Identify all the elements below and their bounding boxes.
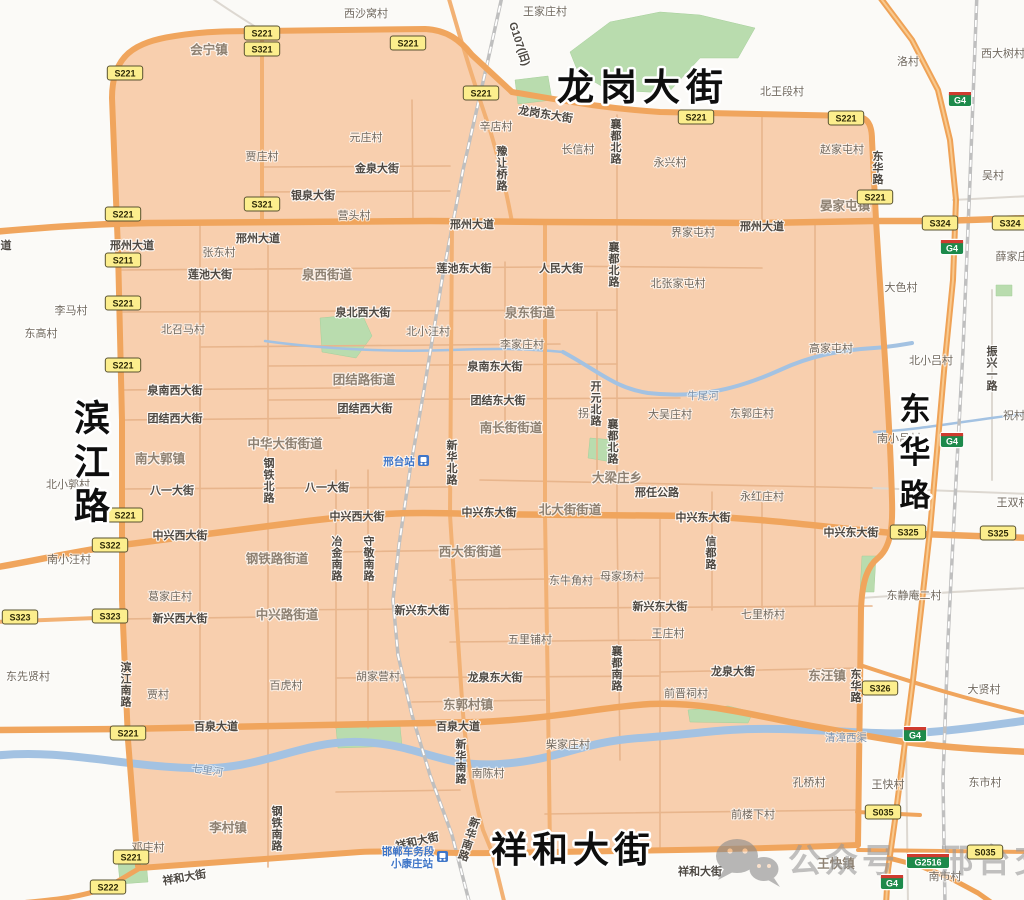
svg-text:G4: G4 <box>946 244 958 254</box>
village-label: 东先贤村 <box>6 669 50 683</box>
district-label: 大梁庄乡 <box>592 470 642 485</box>
svg-text:S325: S325 <box>897 528 918 538</box>
route-shield-S221: S221 <box>463 86 498 100</box>
svg-text:G2516: G2516 <box>914 858 941 868</box>
svg-text:S324: S324 <box>929 219 950 229</box>
svg-text:S221: S221 <box>112 361 133 371</box>
route-shield-G4: G4 <box>948 91 973 107</box>
village-label: 李家庄村 <box>500 337 544 351</box>
road-label: 滨江南路 <box>121 660 133 709</box>
svg-text:S221: S221 <box>114 69 135 79</box>
village-label: 王家庄村 <box>523 4 567 18</box>
road-label: 新兴西大街 <box>153 611 208 625</box>
road-label: 中兴东大街 <box>462 505 517 519</box>
village-label: 贾村 <box>147 687 169 701</box>
district-label: 团结路街道 <box>333 372 396 387</box>
route-shield-S323: S323 <box>92 609 127 623</box>
svg-text:S211: S211 <box>113 256 134 266</box>
road-label: 银泉大街 <box>291 188 335 202</box>
village-label: 辛店村 <box>480 119 513 133</box>
svg-text:邯郸车务段: 邯郸车务段 <box>382 845 435 858</box>
village-label: 洛村 <box>897 54 919 68</box>
route-shield-S324: S324 <box>922 216 957 230</box>
svg-text:S325: S325 <box>987 529 1008 539</box>
svg-text:G4: G4 <box>886 879 898 889</box>
svg-text:S222: S222 <box>97 883 118 893</box>
road-label: 泉南西大街 <box>147 383 203 397</box>
route-shield-S221: S221 <box>244 26 279 40</box>
road-label: 邢任公路 <box>634 485 680 499</box>
svg-text:G4: G4 <box>946 437 958 447</box>
district-label: 西大街街道 <box>439 544 502 559</box>
svg-text:S221: S221 <box>835 114 856 124</box>
village-label: 张东村 <box>203 245 236 259</box>
district-label: 南大郭镇 <box>135 451 186 466</box>
road-label: 邢州大道 <box>109 238 154 252</box>
route-shield-S221: S221 <box>110 726 145 740</box>
road-label: 祥和大街 <box>678 864 722 878</box>
river-label: 牛尾河 <box>687 389 719 402</box>
arterial-big-label: 祥和大街 <box>491 829 655 870</box>
road-label: 八一大街 <box>304 480 349 494</box>
village-label: 北王段村 <box>760 84 804 98</box>
road-label: 开元北路 <box>591 380 603 428</box>
svg-text:S323: S323 <box>99 612 120 622</box>
village-label: 大吴庄村 <box>648 407 692 421</box>
road-label: 道 <box>1 238 12 252</box>
road-label: 襄都南路 <box>611 644 624 693</box>
village-label: 西沙窝村 <box>344 6 388 20</box>
route-shield-S326: S326 <box>862 681 897 695</box>
village-label: 北张家屯村 <box>651 276 706 290</box>
district-label: 泉西街道 <box>301 267 353 282</box>
route-shield-S321: S321 <box>244 197 279 211</box>
route-shield-S325: S325 <box>980 526 1015 540</box>
village-label: 北小吕村 <box>909 353 953 367</box>
road-label: 新华北路 <box>447 438 459 487</box>
svg-text:S035: S035 <box>872 808 893 818</box>
village-label: 南陈村 <box>472 766 505 780</box>
route-shield-G4: G4 <box>903 726 928 742</box>
river-label: 清漳西渠 <box>825 731 867 744</box>
route-shield-S035: S035 <box>967 845 1002 859</box>
road-label: 百泉大道 <box>436 719 480 733</box>
village-label: 大贤村 <box>968 682 1001 696</box>
route-shield-S035: S035 <box>865 805 900 819</box>
road-label: 邢州大道 <box>449 217 494 231</box>
svg-text:S321: S321 <box>251 200 272 210</box>
village-label: 西大树村 <box>981 46 1024 60</box>
village-label: 前晋祠村 <box>664 686 708 700</box>
route-shield-S221: S221 <box>107 508 142 522</box>
route-shield-S222: S222 <box>90 880 125 894</box>
village-label: 王快村 <box>872 777 905 791</box>
road-label: 团结东大街 <box>471 393 526 407</box>
village-label: 永兴村 <box>654 155 687 169</box>
arterial-big-label: 东华路 <box>900 392 933 513</box>
district-label: 泉东街道 <box>504 305 556 320</box>
village-label: 高家屯村 <box>809 341 853 355</box>
road-label: 豫让桥路 <box>497 144 509 193</box>
village-label: 北小汪村 <box>406 324 450 338</box>
village-label: 界家屯村 <box>671 225 715 239</box>
road-label: 中兴东大街 <box>676 510 731 524</box>
road-label: 新兴东大街 <box>395 603 450 617</box>
road-label: 泉北西大街 <box>335 305 391 319</box>
road-label: 振兴一路 <box>987 344 999 393</box>
village-label: 北召马村 <box>161 322 205 336</box>
village-label: 吴村 <box>982 168 1004 182</box>
village-label: 东静庵二村 <box>887 588 942 602</box>
road-label: 邢州大道 <box>235 231 280 245</box>
road-label: 八一大街 <box>149 483 194 497</box>
district-label: 钢铁路街道 <box>246 551 309 566</box>
district-label: 中华大街街道 <box>247 436 323 451</box>
village-label: 永红庄村 <box>740 489 784 503</box>
road-label: 莲池大街 <box>188 267 232 281</box>
route-shield-S221: S221 <box>107 66 142 80</box>
village-label: 七里桥村 <box>741 607 785 621</box>
road-label: 新兴东大街 <box>633 599 688 613</box>
route-shield-S221: S221 <box>105 207 140 221</box>
road-label: 团结西大街 <box>148 411 203 425</box>
route-shield-S221: S221 <box>105 358 140 372</box>
road-label: 新华南路 <box>456 737 468 786</box>
road-label: 龙泉大街 <box>710 664 755 678</box>
route-shield-S221: S221 <box>857 190 892 204</box>
arterial-big-label: 滨江路 <box>74 397 112 526</box>
svg-text:G4: G4 <box>954 96 966 106</box>
village-label: 祝村 <box>1003 408 1024 422</box>
svg-text:G4: G4 <box>909 731 921 741</box>
route-shield-G2516: G2516 <box>906 853 950 869</box>
village-label: 柴家庄村 <box>546 737 590 751</box>
svg-text:S221: S221 <box>251 29 272 39</box>
route-shield-S221: S221 <box>105 296 140 310</box>
route-shield-S322: S322 <box>92 538 127 552</box>
road-label: 中兴西大街 <box>153 528 208 542</box>
village-label: 赵家屯村 <box>820 142 864 156</box>
road-label: 泉南东大街 <box>467 359 523 373</box>
village-label: 李马村 <box>55 303 88 317</box>
village-label: 元庄村 <box>350 130 383 144</box>
road-label: 东华路 <box>851 667 863 704</box>
train-station-icon <box>437 851 448 862</box>
road-label: 信都路 <box>705 534 718 571</box>
svg-text:S221: S221 <box>120 853 141 863</box>
svg-text:S221: S221 <box>114 511 135 521</box>
road-label: 百泉大道 <box>194 719 238 733</box>
svg-text:S323: S323 <box>9 613 30 623</box>
route-shield-S323: S323 <box>2 610 37 624</box>
road-label: 襄都北路 <box>610 117 623 166</box>
route-shield-G4: G4 <box>880 874 905 890</box>
village-label: 葛家庄村 <box>148 589 192 603</box>
map-canvas[interactable]: 牛尾河七里河清漳西渠 西沙窝村王家庄村元庄村贾庄村营头村辛店村长信村永兴村北王段… <box>0 0 1024 900</box>
village-label: 东牛角村 <box>549 573 593 587</box>
district-label: 东汪镇 <box>808 668 846 683</box>
village-label: 长信村 <box>562 142 595 156</box>
train-station-icon <box>418 455 429 466</box>
road-label: 襄都北路 <box>607 417 620 466</box>
district-label: 中兴路街道 <box>256 607 319 622</box>
village-label: 东高村 <box>25 326 58 340</box>
village-label: 薛家庄 <box>996 249 1024 263</box>
road-label: 邢州大道 <box>739 219 784 233</box>
route-shield-S221: S221 <box>390 36 425 50</box>
road-label: 襄都北路 <box>608 240 621 289</box>
svg-text:S321: S321 <box>251 45 272 55</box>
route-shield-S221: S221 <box>678 110 713 124</box>
svg-text:S221: S221 <box>397 39 418 49</box>
svg-text:S221: S221 <box>470 89 491 99</box>
arterial-big-label: 龙岗大街 <box>557 67 729 108</box>
village-label: 前楼下村 <box>731 807 775 821</box>
village-label: 东郭庄村 <box>730 406 774 420</box>
svg-text:S322: S322 <box>99 541 120 551</box>
svg-text:S035: S035 <box>974 848 995 858</box>
village-label: 贾庄村 <box>246 149 279 163</box>
district-label: 南长街街道 <box>480 420 543 435</box>
road-label: 中兴西大街 <box>330 509 385 523</box>
route-shield-S325: S325 <box>890 525 925 539</box>
svg-text:S324: S324 <box>999 219 1020 229</box>
village-label: 东市村 <box>969 775 1002 789</box>
svg-text:S221: S221 <box>685 113 706 123</box>
village-label: 百虎村 <box>270 678 303 692</box>
road-label: 金泉大街 <box>354 161 399 175</box>
svg-text:小康庄站: 小康庄站 <box>390 857 433 870</box>
road-label: 冶金南路 <box>331 534 344 583</box>
district-label: 北大街街道 <box>539 502 602 517</box>
road-label: 东华路 <box>873 149 885 186</box>
district-label: 会宁镇 <box>190 42 228 57</box>
district-label: 东郭村镇 <box>443 697 494 712</box>
road-label: 人民大街 <box>539 261 583 275</box>
road-label: 钢铁南路 <box>272 804 284 853</box>
svg-text:S221: S221 <box>112 299 133 309</box>
svg-text:S221: S221 <box>864 193 885 203</box>
road-label: 钢铁北路 <box>264 456 276 505</box>
road-label: 守敬南路 <box>363 534 376 583</box>
road-label: 团结西大街 <box>338 401 393 415</box>
village-label: 王庄村 <box>652 626 685 640</box>
svg-text:S326: S326 <box>869 684 890 694</box>
route-shield-S221: S221 <box>828 111 863 125</box>
village-label: 王双村 <box>997 495 1024 509</box>
village-label: 大色村 <box>885 280 918 294</box>
svg-text:S221: S221 <box>112 210 133 220</box>
city-map[interactable]: 牛尾河七里河清漳西渠 西沙窝村王家庄村元庄村贾庄村营头村辛店村长信村永兴村北王段… <box>0 0 1024 900</box>
road-label: 龙泉东大街 <box>467 670 523 684</box>
svg-text:邢台站: 邢台站 <box>382 455 415 468</box>
village-label: 营头村 <box>338 208 371 222</box>
route-shield-S221: S221 <box>113 850 148 864</box>
route-shield-G4: G4 <box>940 432 965 448</box>
route-shield-S324: S324 <box>992 216 1024 230</box>
village-label: 母家场村 <box>600 569 644 583</box>
svg-text:S221: S221 <box>117 729 138 739</box>
village-label: 五里铺村 <box>508 632 552 646</box>
route-shield-G4: G4 <box>940 239 965 255</box>
route-shield-S211: S211 <box>105 253 140 267</box>
district-label: 李村镇 <box>208 820 247 835</box>
village-label: 南小汪村 <box>47 552 91 566</box>
village-label: 孔桥村 <box>793 775 826 789</box>
road-label: 莲池东大街 <box>437 261 492 275</box>
route-shield-S321: S321 <box>244 42 279 56</box>
village-label: 胡家营村 <box>356 669 400 683</box>
road-label: 中兴东大街 <box>824 525 879 539</box>
